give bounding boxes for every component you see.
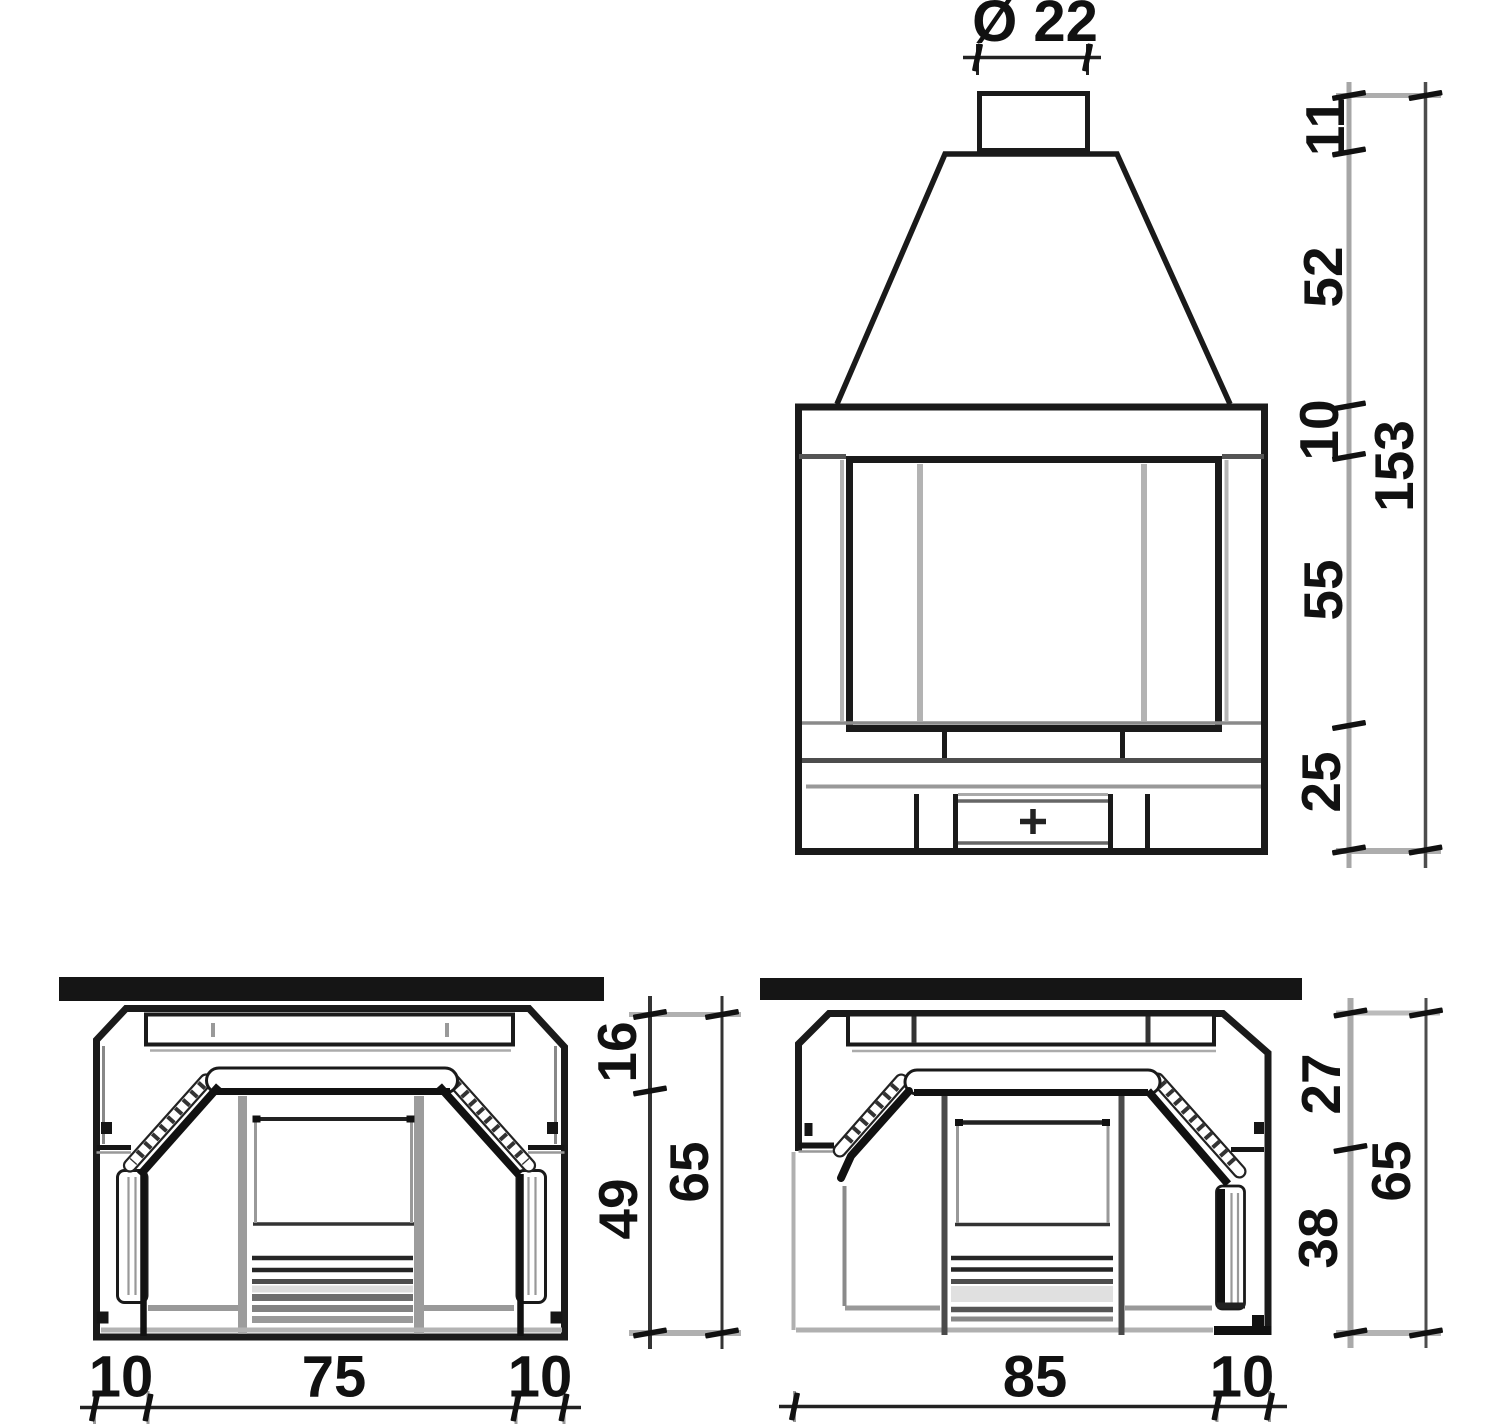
svg-text:65: 65 (658, 1141, 720, 1202)
svg-text:25: 25 (1290, 751, 1352, 812)
svg-text:65: 65 (1360, 1140, 1422, 1201)
svg-text:49: 49 (587, 1178, 649, 1239)
svg-text:55: 55 (1292, 559, 1354, 620)
svg-text:11: 11 (1294, 98, 1356, 156)
svg-text:75: 75 (302, 1345, 367, 1410)
svg-text:16: 16 (586, 1021, 648, 1082)
svg-text:153: 153 (1363, 420, 1425, 512)
svg-text:10: 10 (89, 1345, 154, 1410)
svg-text:10: 10 (1288, 399, 1350, 460)
svg-text:10: 10 (508, 1345, 573, 1410)
svg-text:27: 27 (1290, 1053, 1352, 1114)
svg-text:52: 52 (1292, 246, 1354, 307)
svg-text:Ø 22: Ø 22 (972, 0, 1098, 54)
svg-text:10: 10 (1210, 1345, 1275, 1410)
svg-text:38: 38 (1287, 1207, 1349, 1268)
svg-text:85: 85 (1003, 1345, 1068, 1410)
